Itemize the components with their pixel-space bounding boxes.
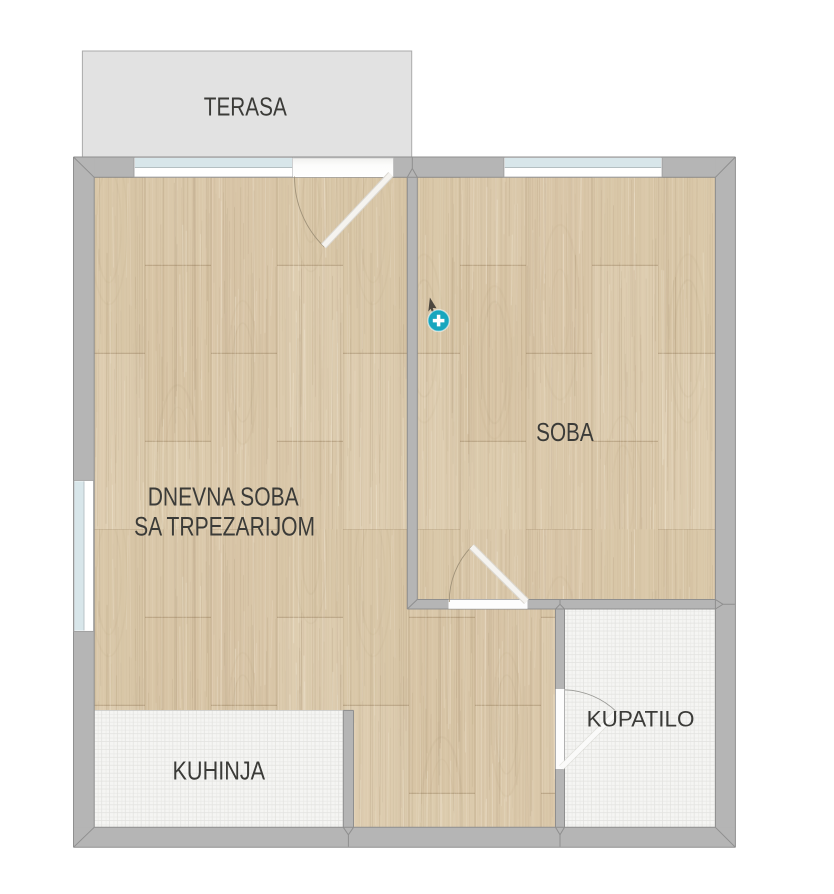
svg-text:KUPATILO: KUPATILO bbox=[587, 707, 695, 732]
svg-text:TERASA: TERASA bbox=[204, 91, 288, 121]
svg-text:SOBA: SOBA bbox=[536, 419, 594, 447]
svg-text:KUHINJA: KUHINJA bbox=[173, 758, 266, 786]
svg-text:DNEVNA SOBA: DNEVNA SOBA bbox=[148, 482, 299, 512]
svg-text:SA TRPEZARIJOM: SA TRPEZARIJOM bbox=[134, 512, 315, 542]
